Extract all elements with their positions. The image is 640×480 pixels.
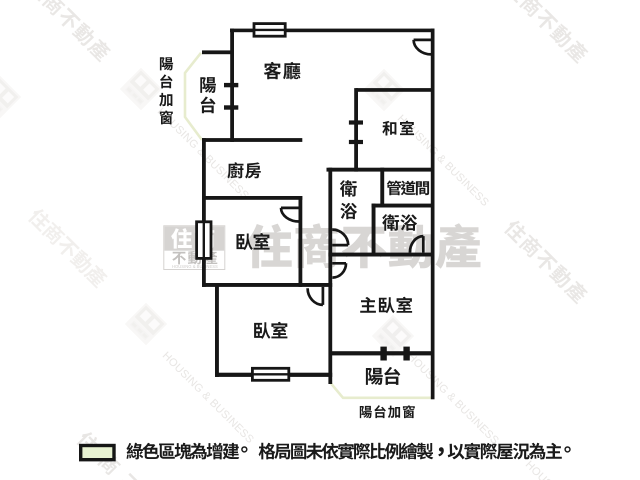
svg-text:HOUSING & BUSINESS: HOUSING & BUSINESS xyxy=(172,264,218,269)
